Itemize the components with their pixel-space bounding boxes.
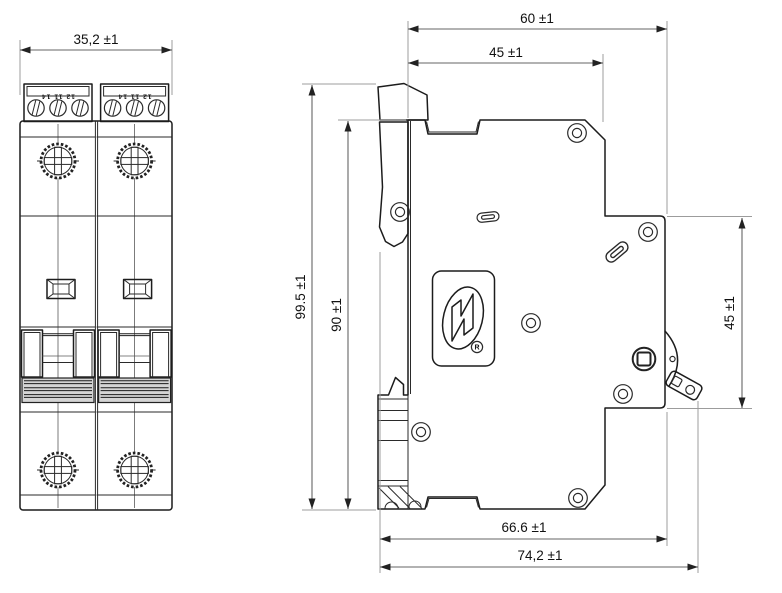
dim-label-total-height: 99.5 ±1 <box>293 275 308 320</box>
rivet <box>522 314 541 333</box>
top-rail-notch <box>427 122 479 133</box>
pole-module-left <box>20 84 95 508</box>
rivet <box>391 203 410 222</box>
dim-label-din-section-height: 45 ±1 <box>722 296 737 330</box>
bottom-rail-notch <box>427 499 479 508</box>
logo-plate: R <box>433 271 495 366</box>
side-toggle-lever-blade[interactable] <box>380 122 409 247</box>
rivet <box>639 223 658 242</box>
side-toggle-handle[interactable] <box>378 84 428 121</box>
dim-label-body-height: 90 ±1 <box>329 298 344 332</box>
front-body-outline <box>20 121 172 510</box>
vent-slot <box>477 211 500 222</box>
dim-label-front-depth: 45 ±1 <box>489 45 523 60</box>
clip-square-shaft <box>638 353 651 366</box>
din-clip-lever[interactable] <box>665 370 704 401</box>
rivet <box>568 124 587 143</box>
dim-label-toggle-to-back: 66.6 ±1 <box>502 520 547 535</box>
technical-drawing-canvas: 12 11 14 <box>0 0 782 593</box>
din-clip-mechanism[interactable] <box>633 331 704 401</box>
brand-logo-icon <box>436 283 489 354</box>
dim-label-total-depth: 60 ±1 <box>520 11 554 26</box>
dim-label-front-width: 35,2 ±1 <box>74 32 119 47</box>
dim-label-toggle-to-clip: 74,2 ±1 <box>518 548 563 563</box>
pole-module-right <box>97 84 172 508</box>
rivet <box>569 489 588 508</box>
svg-text:R: R <box>474 345 479 352</box>
side-view: R <box>378 84 703 510</box>
clip-pin <box>670 356 675 361</box>
front-view <box>20 84 172 510</box>
breaker-dimension-drawing: 12 11 14 <box>0 0 782 593</box>
rivet <box>614 385 633 404</box>
extension-lines <box>20 21 752 573</box>
side-terminal-block <box>378 399 422 509</box>
side-body-outline <box>378 120 665 509</box>
clip-pivot-boss <box>665 331 678 386</box>
registered-trademark-icon: R <box>471 341 482 352</box>
rivet <box>412 423 431 442</box>
vent-slot <box>604 240 630 264</box>
